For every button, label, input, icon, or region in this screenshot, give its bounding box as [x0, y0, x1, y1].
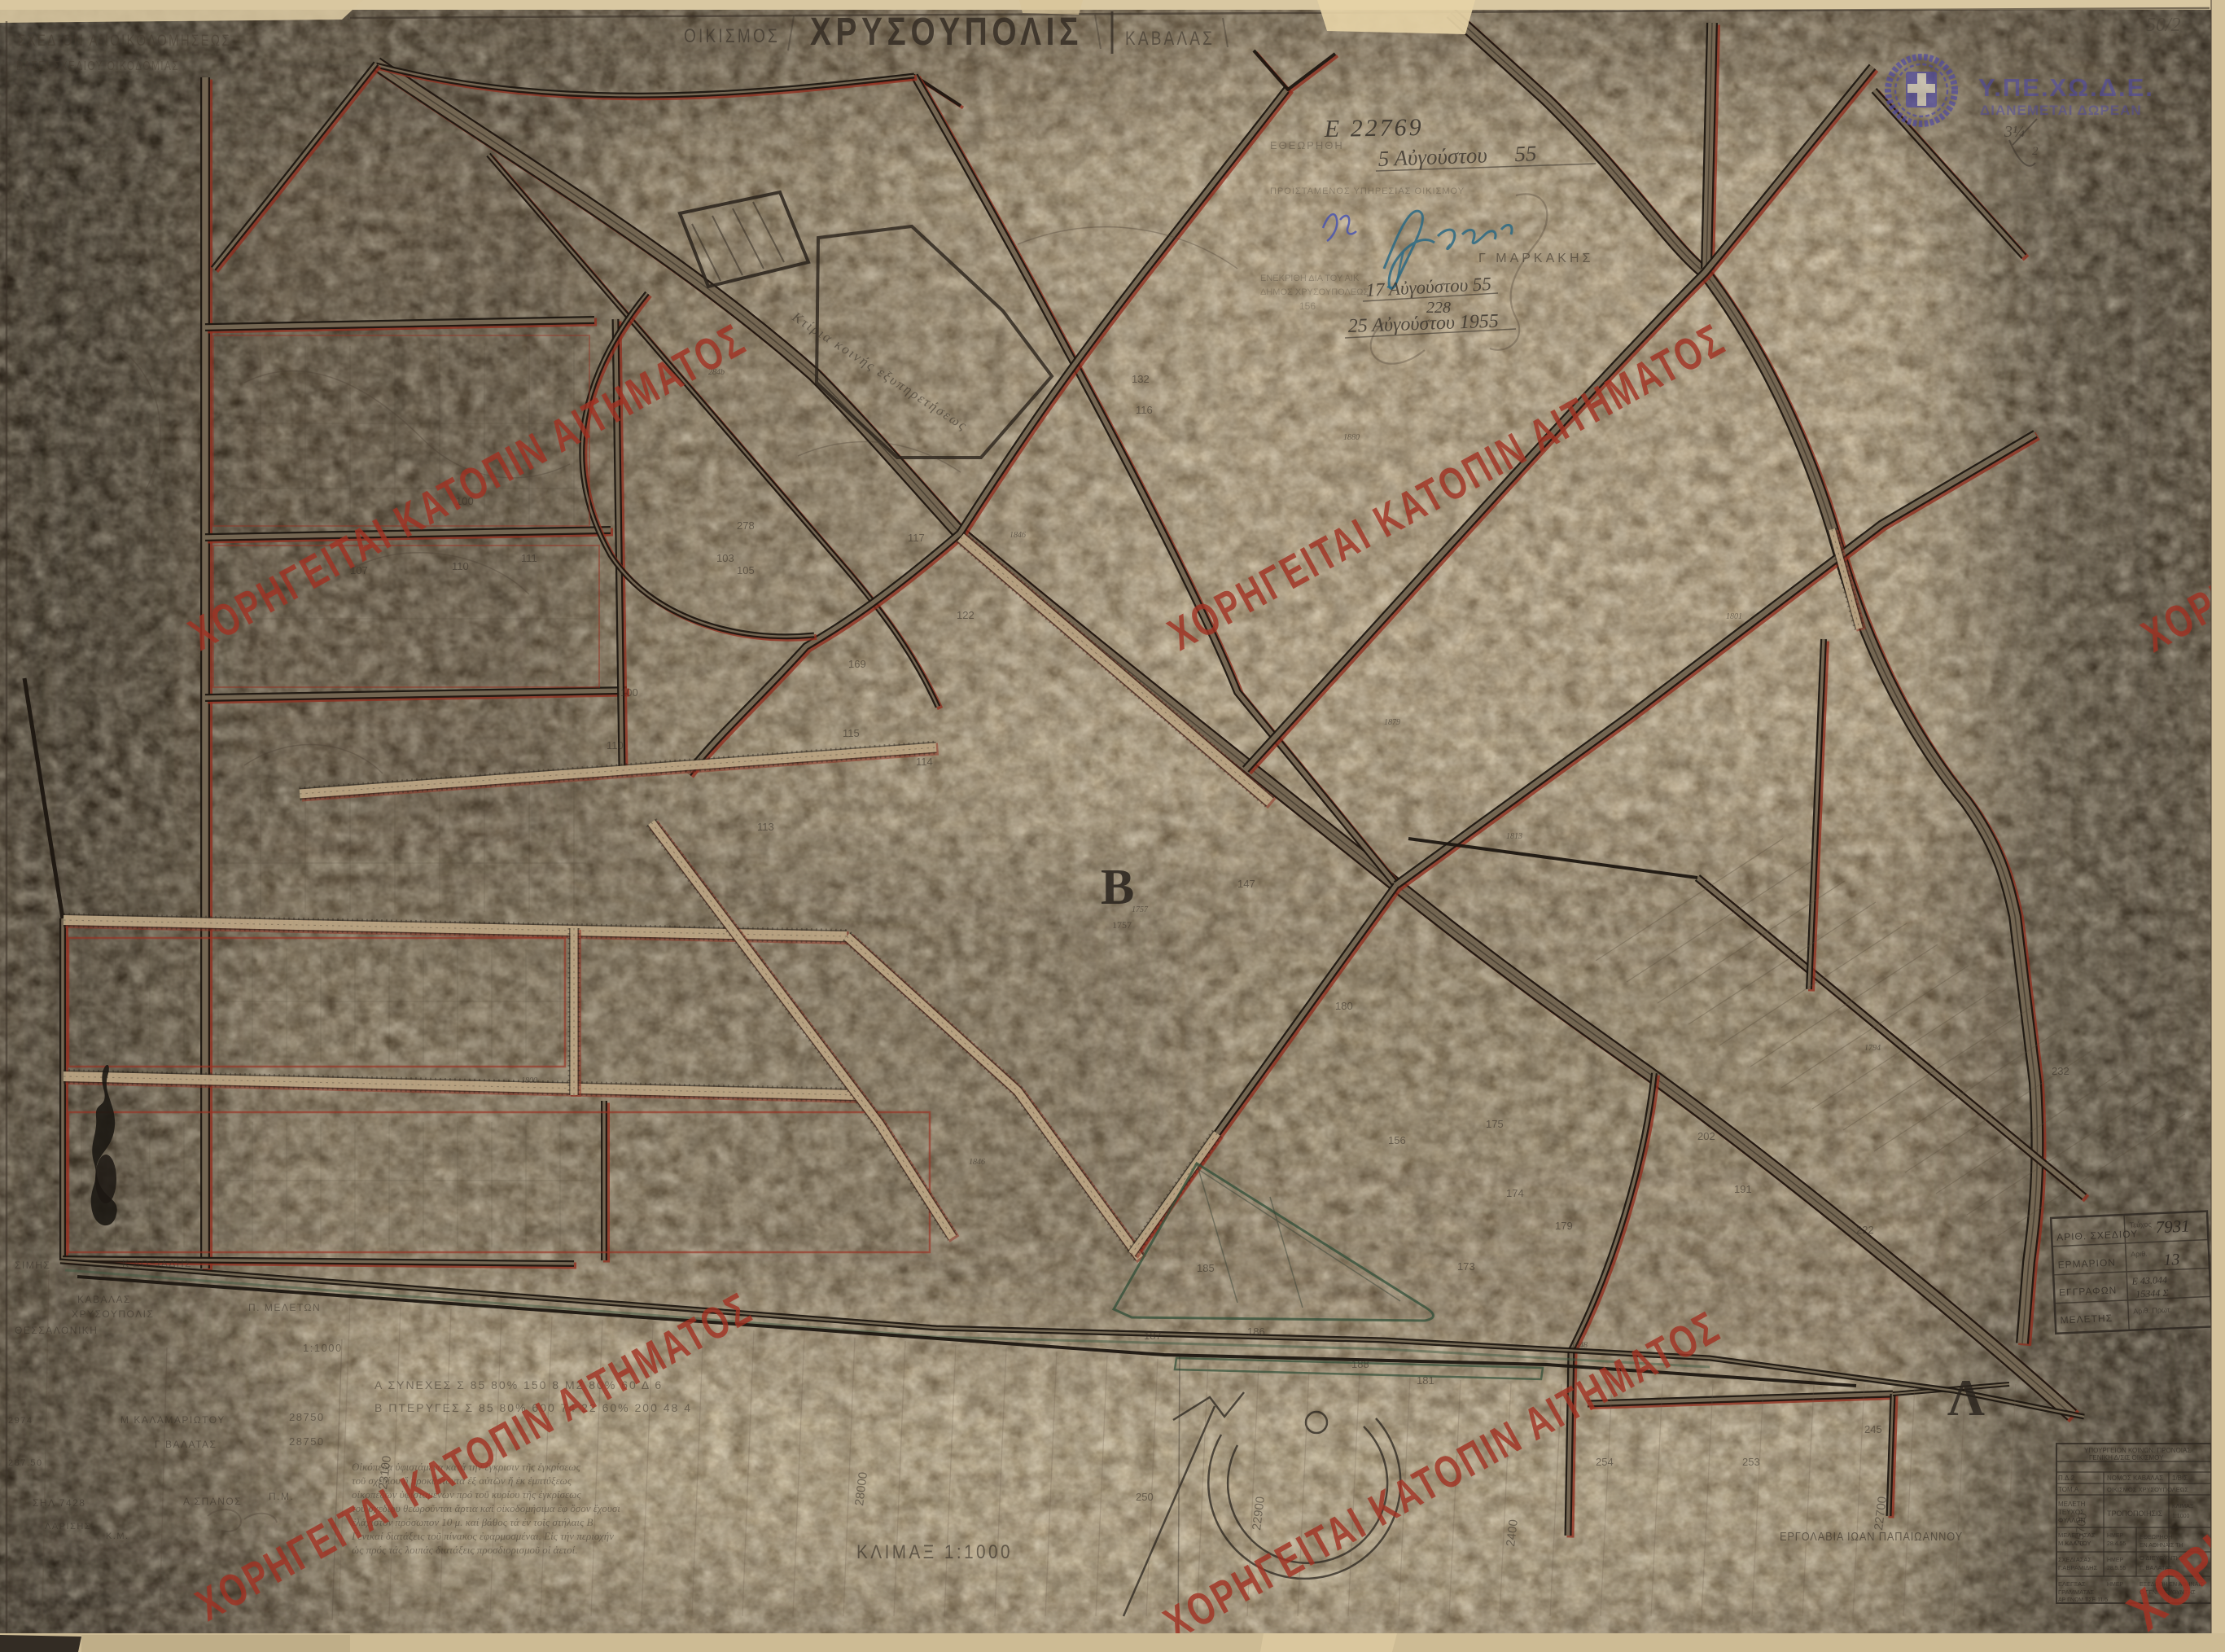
- svg-text:181: 181: [1417, 1374, 1434, 1387]
- svg-text:ΘΕΣΣΑΛΟΝΙΚΗ: ΘΕΣΣΑΛΟΝΙΚΗ: [15, 1325, 98, 1336]
- svg-text:Α ΣΠΑΝΟΣ: Α ΣΠΑΝΟΣ: [183, 1496, 242, 1507]
- svg-text:187: 187: [1144, 1330, 1162, 1342]
- svg-text:202: 202: [1697, 1130, 1715, 1142]
- svg-text:ΜΕΛΕΤΗ: ΜΕΛΕΤΗ: [2058, 1501, 2086, 1508]
- svg-text:174: 174: [1506, 1187, 1524, 1199]
- svg-text:ΓΡΑΜΜΑΤΑΣ: ΓΡΑΜΜΑΤΑΣ: [2058, 1588, 2095, 1596]
- svg-text:ΗΜΕΡ: ΗΜΕΡ: [2107, 1582, 2124, 1588]
- svg-text:156: 156: [1388, 1134, 1406, 1146]
- svg-text:ΧΡΥΣΟΥΠΟΛΙΣ: ΧΡΥΣΟΥΠΟΛΙΣ: [72, 1308, 154, 1320]
- svg-text:191: 191: [1734, 1183, 1752, 1195]
- svg-text:Μ.ΚΑΛ/ΤΟΥ: Μ.ΚΑΛ/ΤΟΥ: [2058, 1540, 2091, 1547]
- svg-text:ΥΠΟΥΡΓΕΙΟΝ ΚΟΙΝΩΝ. ΠΡΟΝΟΙΑΣ: ΥΠΟΥΡΓΕΙΟΝ ΚΟΙΝΩΝ. ΠΡΟΝΟΙΑΣ: [2084, 1447, 2191, 1454]
- svg-text:Αριθ. Πρωτ.: Αριθ. Πρωτ.: [2133, 1306, 2172, 1316]
- svg-text:ΧΡΥΣΟΥΠΟΛΙΣ: ΧΡΥΣΟΥΠΟΛΙΣ: [810, 11, 1083, 54]
- svg-text:ΕΘΕΩΡΗΘΗ: ΕΘΕΩΡΗΘΗ: [2140, 1535, 2172, 1540]
- svg-text:Αριθ.: Αριθ.: [2131, 1250, 2148, 1259]
- svg-text:105: 105: [737, 564, 755, 576]
- svg-text:2: 2: [2032, 145, 2039, 158]
- svg-text:117: 117: [908, 532, 925, 544]
- svg-text:Β: Β: [1101, 860, 1134, 915]
- svg-text:ΠΡΟΪΣΤΑΜΕΝΟΣ ΥΠΗΡΕΣΙΑΣ ΟΙΚΙΣΜΟ: ΠΡΟΪΣΤΑΜΕΝΟΣ ΥΠΗΡΕΣΙΑΣ ΟΙΚΙΣΜΟΥ: [1270, 186, 1465, 196]
- svg-text:ΔΙΑΝΕΜΕΤΑΙ ΔΩΡΕΑΝ: ΔΙΑΝΕΜΕΤΑΙ ΔΩΡΕΑΝ: [1980, 103, 2142, 118]
- svg-text:122: 122: [957, 609, 975, 621]
- svg-text:253: 253: [1742, 1456, 1760, 1468]
- svg-text:Π.Μ.: Π.Μ.: [269, 1491, 294, 1502]
- svg-text:ΗΜΕΡ: ΗΜΕΡ: [2107, 1533, 2124, 1539]
- svg-text:ΤΡΟΠΟΠΟΙΗΣΙΣ: ΤΡΟΠΟΠΟΙΗΣΙΣ: [2107, 1510, 2163, 1518]
- svg-text:ΣΗΛ 7428: ΣΗΛ 7428: [33, 1497, 85, 1509]
- svg-text:ΛΑΡΙΣΗΣ: ΛΑΡΙΣΗΣ: [45, 1522, 91, 1531]
- svg-text:156: 156: [1299, 300, 1316, 312]
- svg-text:ΝΟΜΟΣ ΚΑΒΑΛΑΣ: ΝΟΜΟΣ ΚΑΒΑΛΑΣ: [2107, 1475, 2163, 1482]
- svg-text:ΤΟΜ.Α: ΤΟΜ.Α: [2058, 1486, 2079, 1493]
- svg-text:ΦΥΛΛΩΝ: ΦΥΛΛΩΝ: [2058, 1517, 2086, 1524]
- svg-text:50/2: 50/2: [2146, 15, 2181, 36]
- svg-text:232: 232: [2052, 1065, 2070, 1077]
- svg-text:1800: 1800: [521, 1076, 537, 1085]
- svg-text:ΕΘΕΩΡΗΘΗ: ΕΘΕΩΡΗΘΗ: [1270, 139, 1344, 151]
- svg-text:132: 132: [1132, 373, 1150, 385]
- svg-text:186: 186: [1247, 1326, 1265, 1338]
- svg-text:28.5.55: 28.5.55: [2107, 1566, 2126, 1571]
- svg-text:1:1000: 1:1000: [2172, 1514, 2190, 1519]
- svg-text:28750: 28750: [289, 1411, 325, 1423]
- svg-text:1/ΒΙΣ: 1/ΒΙΣ: [2172, 1475, 2188, 1482]
- svg-text:Τεύχος: Τεύχος: [2129, 1220, 2152, 1229]
- svg-text:1:1000: 1:1000: [303, 1342, 343, 1354]
- svg-text:Π. ΜΕΛΕΤΩΝ: Π. ΜΕΛΕΤΩΝ: [248, 1302, 321, 1313]
- svg-text:3¼: 3¼: [2004, 123, 2025, 141]
- svg-text:7931: 7931: [2155, 1216, 2190, 1237]
- svg-text:15344 Σ: 15344 Σ: [2135, 1287, 2169, 1300]
- svg-text:ΕΝΕΚΡΙΘΗ ΔΙΑ ΤΟΥ ΑΙΚ: ΕΝΕΚΡΙΘΗ ΔΙΑ ΤΟΥ ΑΙΚ: [1260, 274, 1360, 283]
- svg-text:13: 13: [2163, 1251, 2180, 1269]
- svg-text:188: 188: [1351, 1358, 1369, 1370]
- svg-text:1848: 1848: [1571, 1341, 1588, 1350]
- svg-text:ΚΛΙΜΑΞ: ΚΛΙΜΑΞ: [2172, 1504, 2194, 1510]
- svg-text:ΟΙΚΙΣΜΟΣ: ΟΙΚΙΣΜΟΣ: [684, 25, 780, 47]
- svg-text:28750: 28750: [289, 1435, 325, 1448]
- svg-text:254: 254: [1596, 1456, 1614, 1468]
- svg-text:110: 110: [607, 739, 624, 752]
- svg-text:Κ.Μ.: Κ.Μ.: [106, 1531, 129, 1541]
- svg-text:ΚΛΙΜΑΞ 1:1000: ΚΛΙΜΑΞ 1:1000: [856, 1541, 1013, 1563]
- svg-text:1801: 1801: [1726, 612, 1742, 621]
- svg-text:ΓΕΝΙΚΗ Δ/ΣΙΣ ΟΙΚΙΣΜΟΥ: ΓΕΝΙΚΗ Δ/ΣΙΣ ΟΙΚΙΣΜΟΥ: [2089, 1454, 2164, 1461]
- svg-text:Ε 43.044: Ε 43.044: [2131, 1274, 2167, 1287]
- svg-text:169: 169: [848, 658, 866, 670]
- svg-text:ΔΗΜΟΣ ΧΡΥΣΟΥΠΟΛΕΩΣ: ΔΗΜΟΣ ΧΡΥΣΟΥΠΟΛΕΩΣ: [1260, 287, 1369, 297]
- svg-text:287.50: 287.50: [8, 1458, 43, 1468]
- svg-text:175: 175: [1486, 1118, 1504, 1130]
- svg-text:Ε 22769: Ε 22769: [1324, 114, 1424, 142]
- svg-text:Γ.ΑΒΡΑΜΙΔΗΣ: Γ.ΑΒΡΑΜΙΔΗΣ: [2058, 1564, 2098, 1571]
- svg-text:ὡς πρός τάς λοιπάς διατάξεις π: ὡς πρός τάς λοιπάς διατάξεις προσδιορισμ…: [352, 1544, 578, 1556]
- svg-text:110: 110: [452, 560, 469, 572]
- svg-text:113: 113: [757, 821, 774, 833]
- svg-text:Μ ΚΑΛΑΜΑΡΙΩΤΟΥ: Μ ΚΑΛΑΜΑΡΙΩΤΟΥ: [120, 1414, 226, 1426]
- svg-text:28.4.55: 28.4.55: [2107, 1541, 2126, 1547]
- svg-text:Υ.ΠΕ.ΧΩ.Δ.Ε.: Υ.ΠΕ.ΧΩ.Δ.Ε.: [1978, 73, 2154, 102]
- svg-text:1794: 1794: [1864, 1044, 1881, 1053]
- svg-text:Κ ΔΟΞΙΑΔΗΣ: Κ ΔΟΞΙΑΔΗΣ: [122, 1258, 192, 1269]
- svg-text:ΑΡ ΓΝΩΜ ΤΣΕ 11/5: ΑΡ ΓΝΩΜ ΤΣΕ 11/5: [2058, 1597, 2108, 1603]
- svg-text:179: 179: [1555, 1220, 1573, 1232]
- svg-text:1846: 1846: [969, 1158, 985, 1167]
- svg-text:ΤΕΥΧΟΣ: ΤΕΥΧΟΣ: [2058, 1509, 2084, 1516]
- svg-text:2974: 2974: [8, 1416, 33, 1426]
- svg-text:222: 222: [1856, 1224, 1874, 1236]
- svg-text:ΗΜΕΡ: ΗΜΕΡ: [2107, 1558, 2124, 1563]
- svg-text:ΣΧΕΔΙΑΣΑΣ: ΣΧΕΔΙΑΣΑΣ: [2058, 1556, 2091, 1563]
- svg-text:Γ ΒΑΛΑΤΑΣ: Γ ΒΑΛΑΤΑΣ: [155, 1439, 217, 1450]
- svg-text:116: 116: [1136, 404, 1153, 416]
- svg-text:ΣΧΕΔΙΟΝ ΑΝΟΙΚΟΔΟΜΗΣΕΩΣ: ΣΧΕΔΙΟΝ ΑΝΟΙΚΟΔΟΜΗΣΕΩΣ: [18, 33, 231, 50]
- svg-text:ΣΙΜΗΣ: ΣΙΜΗΣ: [15, 1260, 50, 1271]
- svg-text:1846: 1846: [1010, 531, 1026, 540]
- svg-text:1879: 1879: [1384, 718, 1400, 727]
- svg-text:Γ ΜΑΡΚΑΚΗΣ: Γ ΜΑΡΚΑΚΗΣ: [1478, 252, 1593, 265]
- svg-text:1880: 1880: [1343, 433, 1360, 442]
- svg-text:111: 111: [521, 552, 537, 564]
- svg-text:115: 115: [843, 727, 860, 739]
- svg-text:ΜΕΛΕΤΗΣΑΣ: ΜΕΛΕΤΗΣΑΣ: [2058, 1531, 2096, 1539]
- svg-text:Π.Δ.2: Π.Δ.2: [2058, 1475, 2075, 1482]
- svg-text:ΟΙΚΙΣΜΟΣ ΧΡΥΣΟΥΠΟΛΕΩΣ: ΟΙΚΙΣΜΟΣ ΧΡΥΣΟΥΠΟΛΕΩΣ: [2107, 1486, 2188, 1493]
- svg-text:ΕΛΕΓΞΑΣ: ΕΛΕΓΞΑΣ: [2058, 1580, 2086, 1588]
- svg-text:ΚΑΒΑΛΑΣ: ΚΑΒΑΛΑΣ: [77, 1294, 131, 1305]
- svg-text:103: 103: [716, 552, 734, 564]
- svg-text:278: 278: [737, 519, 755, 532]
- svg-text:100: 100: [620, 686, 638, 699]
- svg-text:ΕΡΓΟΛΑΒΙΑ ΙΩΑΝ ΠΑΠΑΙΩΑΝΝΟΥ: ΕΡΓΟΛΑΒΙΑ ΙΩΑΝ ΠΑΠΑΙΩΑΝΝΟΥ: [1780, 1530, 1963, 1544]
- svg-text:250: 250: [1136, 1491, 1154, 1503]
- svg-text:147: 147: [1237, 878, 1255, 890]
- svg-text:180: 180: [1335, 1000, 1353, 1012]
- svg-text:ΚΑΒΑΛΑΣ: ΚΑΒΑΛΑΣ: [1125, 28, 1215, 50]
- svg-text:245: 245: [1864, 1423, 1882, 1435]
- svg-text:185: 185: [1197, 1262, 1215, 1274]
- svg-text:ΒΑΣΕΙ ΣΧΕΔΙΟΥ ΟΙΚΟΔΟΜΙΑΣ: ΒΑΣΕΙ ΣΧΕΔΙΟΥ ΟΙΚΟΔΟΜΙΑΣ: [16, 59, 179, 73]
- svg-text:173: 173: [1457, 1260, 1475, 1273]
- svg-text:114: 114: [916, 756, 933, 768]
- svg-text:ΜΕΛΕΤΗΣ: ΜΕΛΕΤΗΣ: [2060, 1312, 2113, 1326]
- svg-text:Λ: Λ: [1947, 1369, 1985, 1426]
- svg-text:1757: 1757: [1112, 919, 1132, 931]
- svg-text:1813: 1813: [1506, 832, 1522, 841]
